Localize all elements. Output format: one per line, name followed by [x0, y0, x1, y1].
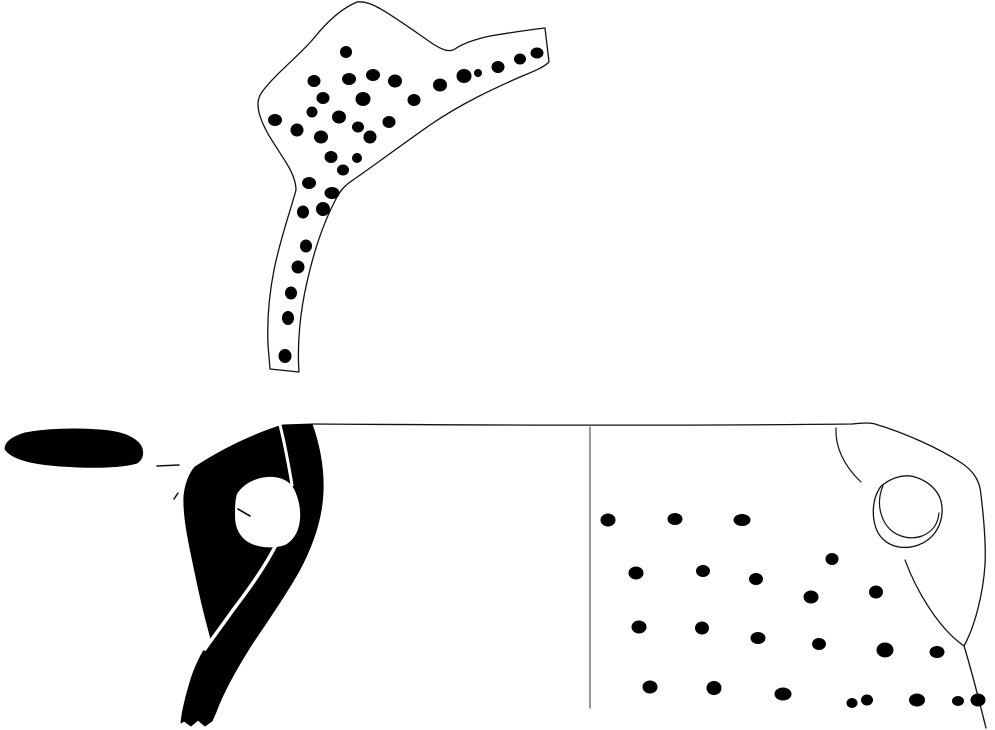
stipple-dot — [930, 646, 945, 658]
stipple-dot — [292, 261, 305, 274]
stipple-dot — [749, 573, 763, 585]
stipple-dot — [952, 696, 964, 706]
stipple-dot — [971, 694, 986, 707]
profile-body-section — [181, 424, 323, 726]
stipple-dot — [325, 151, 338, 163]
stipple-dot — [861, 695, 873, 706]
stipple-dot — [877, 643, 894, 658]
stipple-dot — [734, 514, 751, 526]
stipple-dot — [279, 349, 292, 363]
rim-section-blob — [5, 429, 143, 467]
stipple-dot — [514, 54, 526, 65]
pottery-figure — [0, 0, 995, 730]
stipple-dot — [366, 69, 380, 81]
handle-attachment-curve — [905, 560, 964, 646]
stipple-dot — [302, 177, 316, 189]
stipple-dot — [696, 565, 710, 577]
stipple-dot — [282, 311, 294, 325]
stipple-dot — [285, 287, 297, 300]
stipple-dot — [352, 122, 364, 133]
stipple-dot — [668, 513, 683, 525]
leader-dash — [157, 465, 179, 466]
stipple-dot — [457, 69, 472, 83]
stipple-dot — [337, 165, 349, 176]
stipple-dot — [364, 131, 377, 144]
stipple-dot — [643, 681, 658, 694]
stipple-dot — [695, 622, 709, 635]
stipple-dot — [291, 124, 304, 137]
face-stipple — [601, 513, 986, 708]
stipple-dot — [812, 638, 826, 650]
stipple-dot — [531, 48, 544, 59]
stipple-dot — [632, 621, 647, 634]
stipple-dot — [847, 698, 858, 708]
top-sherd-outline — [258, 2, 549, 372]
handle-scar-inner — [879, 486, 939, 538]
stipple-dot — [383, 116, 396, 128]
stipple-dot — [869, 586, 883, 599]
stipple-dot — [492, 61, 505, 73]
stipple-dot — [314, 131, 328, 144]
stipple-dot — [474, 69, 482, 77]
stipple-dot — [325, 187, 340, 199]
shoulder-arc — [836, 428, 861, 482]
stipple-dot — [356, 92, 371, 106]
stipple-dot — [268, 114, 282, 126]
stipple-dot — [297, 206, 309, 219]
stipple-dot — [332, 111, 346, 124]
stipple-dot — [340, 46, 352, 58]
figure-svg — [0, 0, 995, 730]
stipple-dot — [909, 694, 925, 707]
stipple-dot — [408, 94, 421, 106]
stipple-dot — [352, 153, 362, 163]
stipple-dot — [388, 75, 402, 88]
stipple-dot — [307, 107, 318, 118]
stipple-dot — [751, 632, 766, 644]
handle-scar-outer — [873, 476, 942, 548]
stipple-dot — [629, 567, 644, 580]
stipple-dot — [601, 514, 616, 527]
stipple-dot — [300, 240, 312, 253]
stipple-dot — [433, 79, 447, 92]
stipple-dot — [316, 202, 330, 216]
stipple-dot — [342, 73, 356, 85]
left-tick-mark — [174, 493, 178, 499]
stipple-dot — [775, 688, 792, 701]
stipple-dot — [826, 553, 839, 565]
stipple-dot — [308, 75, 321, 87]
stipple-dot — [804, 591, 819, 604]
stipple-dot — [317, 92, 330, 104]
stipple-dot — [707, 681, 722, 695]
